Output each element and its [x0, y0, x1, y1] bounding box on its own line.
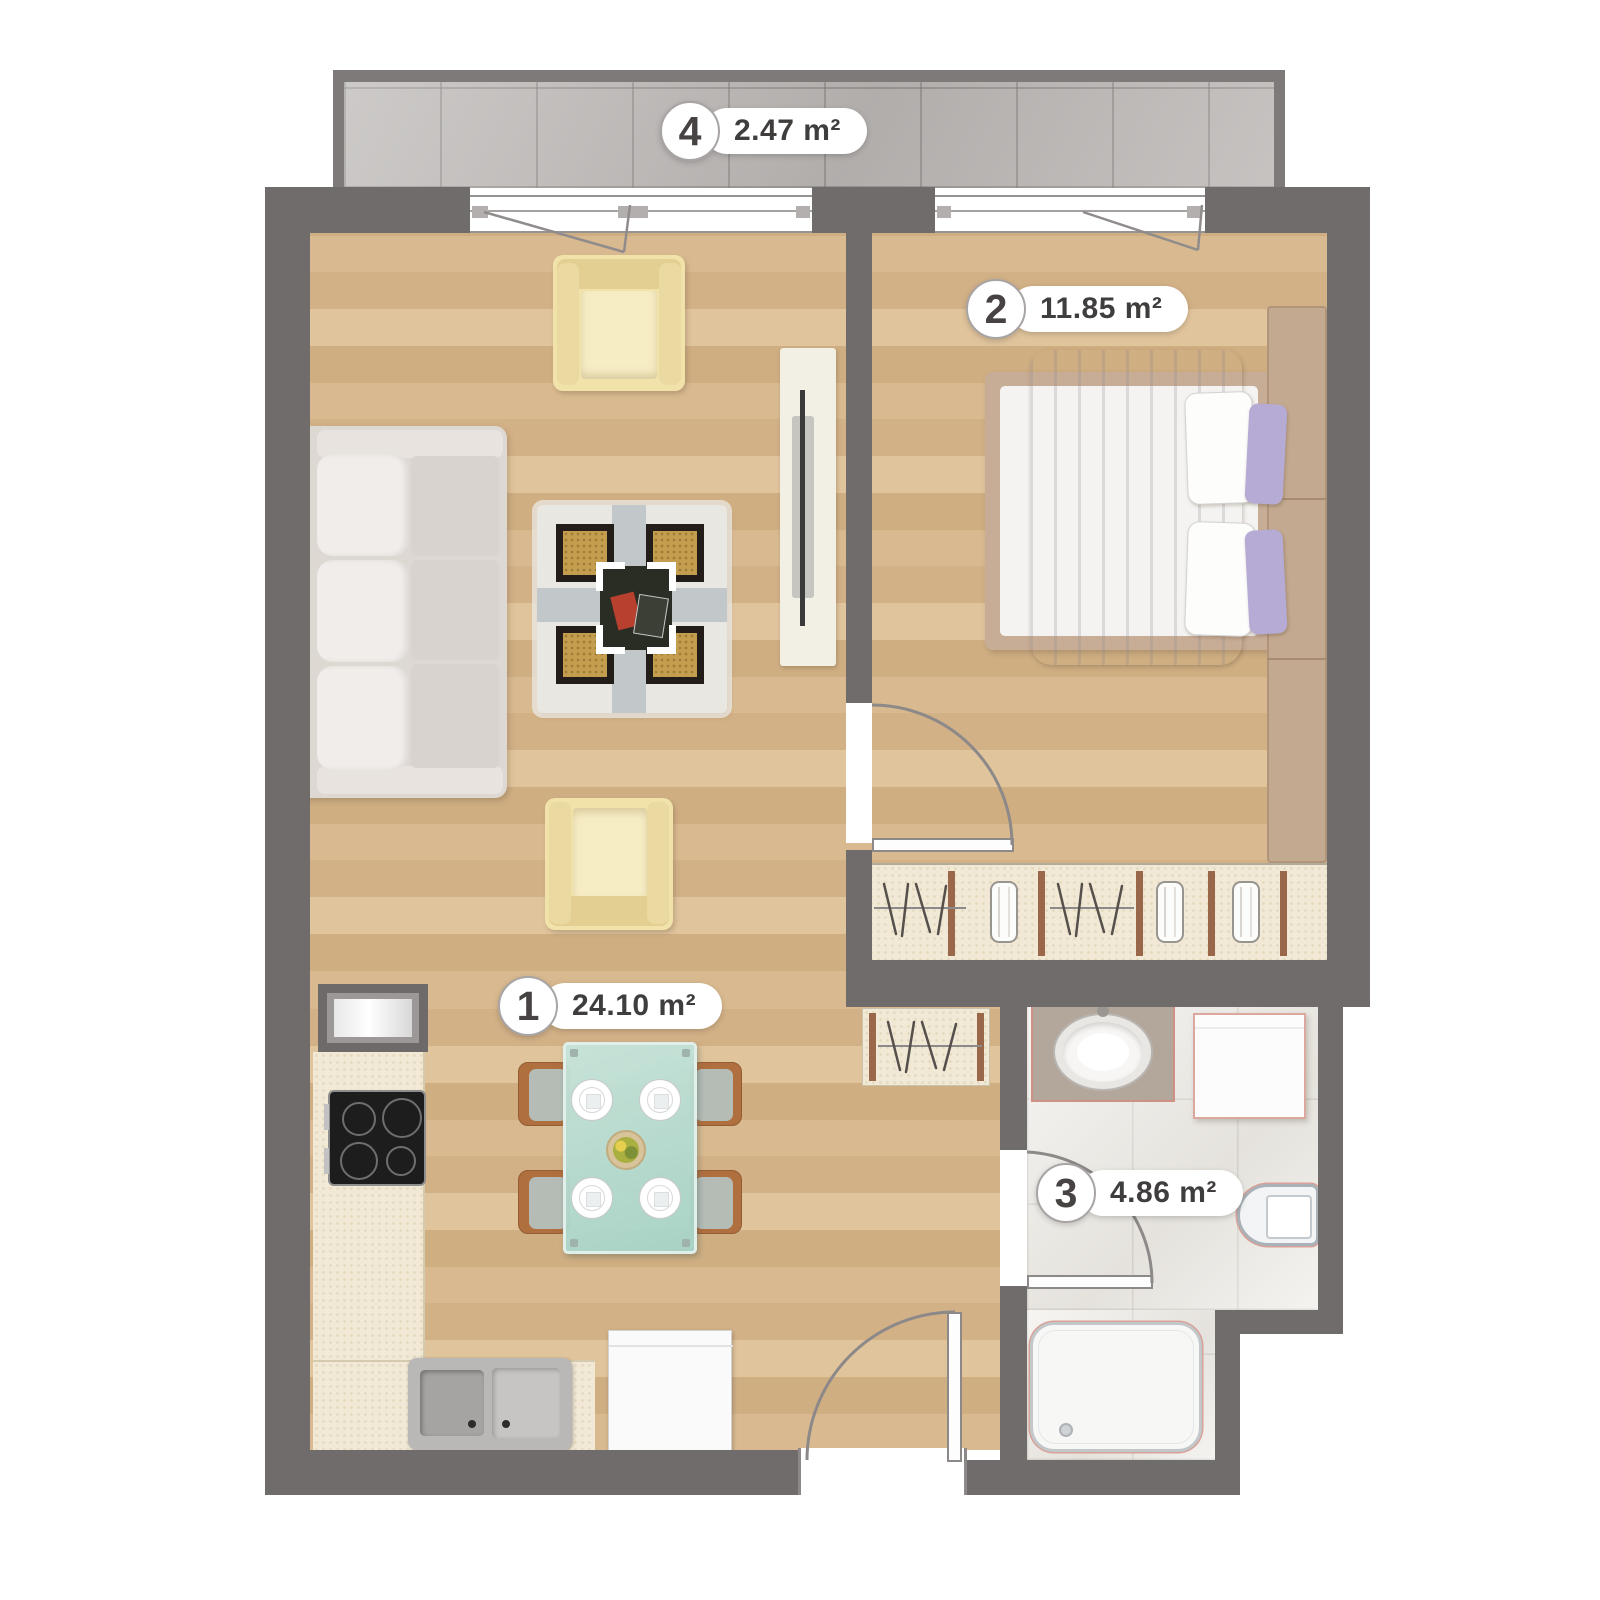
wall-living-bedroom-divider	[846, 233, 872, 703]
coffee-table	[600, 566, 672, 650]
room-label-balcony: 4 2.47 m²	[660, 101, 867, 161]
room-number-badge: 4	[660, 101, 720, 161]
toilet	[1237, 1184, 1319, 1246]
room-area-pill: 11.85 m²	[1010, 286, 1188, 332]
bathroom-vanity	[1033, 1005, 1173, 1100]
room-number-badge: 1	[498, 976, 558, 1036]
wardrobe-divider	[1038, 871, 1045, 956]
wall-left	[265, 187, 310, 1494]
folded-towel	[990, 881, 1018, 943]
folded-towel	[1232, 881, 1260, 943]
toilet-seat	[1266, 1195, 1312, 1239]
hall-wardrobe	[862, 1008, 990, 1086]
sofa-armrest-bottom	[317, 766, 503, 794]
wall-bath-right-lower	[1215, 1310, 1240, 1495]
balcony-door-window	[470, 195, 812, 233]
room-number: 1	[517, 983, 540, 1030]
folded-towel	[1156, 881, 1184, 943]
bed-pillow-lavender	[1244, 403, 1287, 505]
plate	[639, 1177, 681, 1219]
wall-bottom-middle	[967, 1460, 1240, 1495]
sink-drain	[502, 1420, 510, 1428]
wall-bath-left-lower	[1000, 1286, 1027, 1463]
room-area-pill: 2.47 m²	[704, 108, 867, 154]
armchair-top	[553, 255, 685, 391]
room-area-pill: 24.10 m²	[542, 983, 722, 1029]
tv-stand	[780, 348, 836, 666]
room-area-pill: 4.86 m²	[1080, 1170, 1243, 1216]
bathroom-door-leaf	[1027, 1275, 1153, 1289]
wardrobe-divider	[1280, 871, 1287, 956]
kitchen-wall-niche	[318, 984, 428, 1052]
dining-chair	[690, 1170, 742, 1234]
wardrobe-divider	[869, 1013, 876, 1081]
tv-screen	[800, 390, 805, 626]
room-label-bedroom: 2 11.85 m²	[966, 279, 1188, 339]
wardrobe-divider	[977, 1013, 984, 1081]
room-number-badge: 2	[966, 279, 1026, 339]
table-corner	[647, 562, 676, 591]
table-corner	[596, 562, 625, 591]
plate	[571, 1177, 613, 1219]
balcony-railing-top	[333, 70, 1285, 82]
shower-tray	[1030, 1322, 1202, 1452]
sink-bowl	[1053, 1013, 1153, 1091]
bedroom-door-opening	[846, 703, 872, 843]
entrance-jamb	[964, 1448, 967, 1495]
room-number: 3	[1055, 1170, 1078, 1217]
washing-machine	[1193, 1013, 1306, 1119]
kitchen-sink	[408, 1358, 572, 1450]
room-area: 11.85 m²	[1040, 292, 1162, 326]
bed-pillow-lavender	[1244, 529, 1287, 635]
balcony-railing-right	[1274, 70, 1285, 196]
wardrobe-divider	[948, 871, 955, 956]
wall-bedroom-right	[1327, 187, 1370, 1007]
serving-bowl	[606, 1130, 646, 1170]
shower-drain	[1059, 1423, 1073, 1437]
entrance-jamb	[798, 1448, 801, 1495]
sofa	[297, 426, 507, 798]
cooktop	[328, 1090, 426, 1186]
wall-bedroom-bottom	[846, 960, 1345, 1007]
room-number: 4	[679, 108, 702, 155]
floor-plan: 1 24.10 m² 2 11.85 m² 3 4.86 m² 4 2.47 m…	[0, 0, 1600, 1600]
magazine-dark	[633, 594, 669, 638]
wardrobe-divider	[1136, 871, 1143, 956]
wall-bath-right	[1318, 1007, 1343, 1312]
room-area: 24.10 m²	[572, 989, 696, 1023]
room-area: 2.47 m²	[734, 114, 841, 148]
room-label-living: 1 24.10 m²	[498, 976, 722, 1036]
room-area: 4.86 m²	[1110, 1176, 1217, 1210]
wall-top-middle-pillar	[812, 187, 935, 233]
room-number: 2	[985, 286, 1008, 333]
sink-basin-right	[492, 1368, 560, 1438]
bedroom-wardrobe	[868, 863, 1327, 960]
armchair-bottom	[545, 798, 673, 930]
room-label-bathroom: 3 4.86 m²	[1036, 1163, 1243, 1223]
wall-bottom-left	[265, 1450, 798, 1495]
sofa-back-cushions	[317, 454, 409, 770]
entrance-door-leaf	[947, 1312, 962, 1462]
bedroom-window	[935, 195, 1205, 233]
entrance-door-opening	[798, 1448, 967, 1495]
bathroom-door-opening	[1000, 1150, 1027, 1286]
rug	[537, 505, 727, 713]
wall-bath-left-upper	[1000, 1007, 1027, 1150]
plate	[571, 1079, 613, 1121]
sink-drain	[468, 1420, 476, 1428]
sofa-seat-cushions	[411, 456, 499, 768]
bedroom-door-leaf	[872, 838, 1014, 852]
wall-door-pillar	[846, 850, 872, 964]
plate	[639, 1079, 681, 1121]
balcony-railing-left	[333, 70, 344, 196]
room-number-badge: 3	[1036, 1163, 1096, 1223]
dining-chair	[690, 1062, 742, 1126]
wardrobe-divider	[1208, 871, 1215, 956]
refrigerator	[608, 1330, 732, 1452]
